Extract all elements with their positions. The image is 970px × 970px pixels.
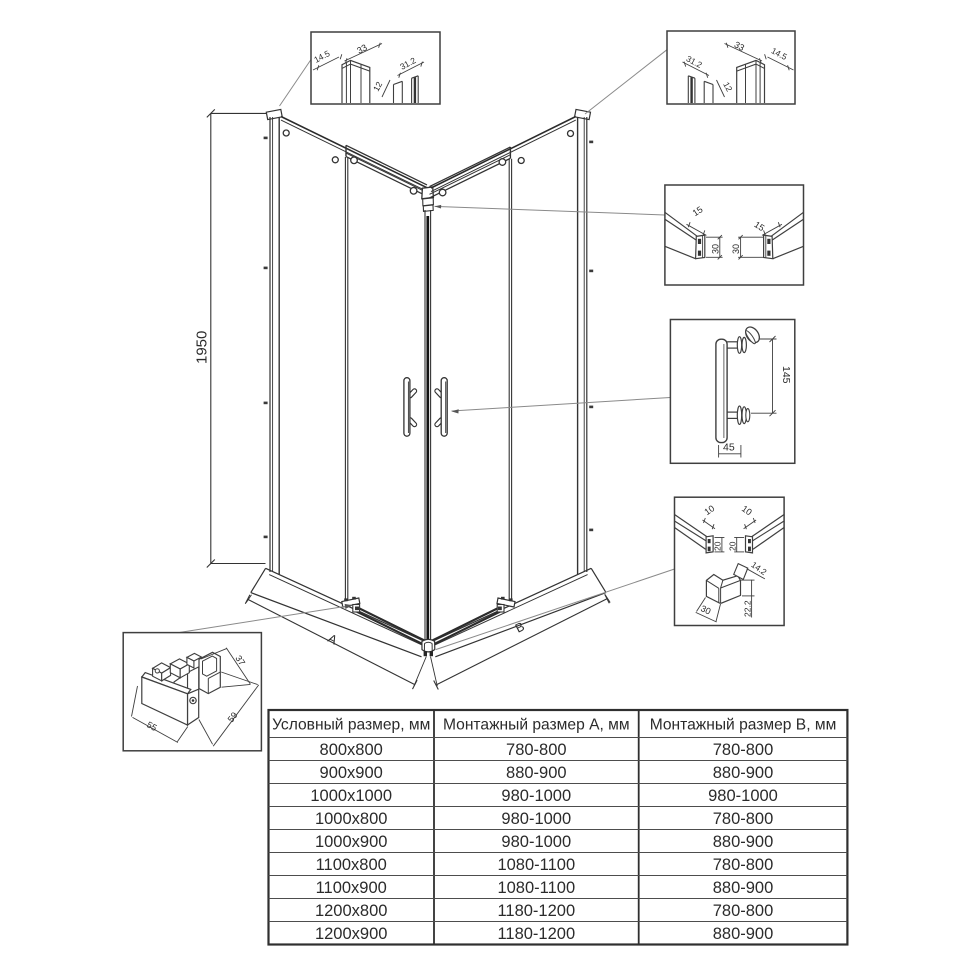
svg-text:30: 30 [731,244,741,254]
svg-text:Монтажный размер В, мм: Монтажный размер В, мм [650,716,837,733]
svg-text:1100х800: 1100х800 [316,856,387,874]
svg-text:Условный размер, мм: Условный размер, мм [272,716,430,733]
svg-text:880-900: 880-900 [506,764,567,782]
svg-text:30: 30 [711,244,721,254]
svg-text:980-1000: 980-1000 [501,787,571,805]
svg-text:B: B [513,619,527,635]
svg-text:1180-1200: 1180-1200 [497,902,575,920]
svg-text:1080-1100: 1080-1100 [497,856,575,874]
svg-text:1080-1100: 1080-1100 [497,879,575,897]
svg-text:880-900: 880-900 [713,925,774,943]
svg-text:880-900: 880-900 [713,833,774,851]
svg-text:780-800: 780-800 [713,856,774,874]
svg-text:45: 45 [723,442,735,454]
svg-text:800х800: 800х800 [320,741,383,759]
svg-text:145: 145 [780,366,792,384]
svg-text:1000х1000: 1000х1000 [310,787,392,805]
svg-text:900х900: 900х900 [320,764,383,782]
svg-text:Монтажный размер А, мм: Монтажный размер А, мм [443,716,630,733]
svg-text:1000х900: 1000х900 [315,833,388,851]
svg-text:780-800: 780-800 [713,902,774,920]
svg-text:20: 20 [713,541,723,551]
svg-text:1200х800: 1200х800 [315,902,388,920]
svg-text:780-800: 780-800 [713,810,774,828]
svg-text:780-800: 780-800 [713,741,774,759]
svg-text:980-1000: 980-1000 [708,787,778,805]
svg-text:980-1000: 980-1000 [501,833,571,851]
svg-text:1100х900: 1100х900 [316,879,387,897]
svg-text:1000х800: 1000х800 [315,810,388,828]
svg-text:20: 20 [727,541,737,551]
svg-text:1180-1200: 1180-1200 [497,925,575,943]
svg-text:1950: 1950 [194,331,211,364]
svg-text:780-800: 780-800 [506,741,567,759]
svg-text:1200х900: 1200х900 [315,925,388,943]
svg-text:880-900: 880-900 [713,879,774,897]
svg-text:980-1000: 980-1000 [501,810,571,828]
svg-text:22.2: 22.2 [742,600,752,617]
svg-text:880-900: 880-900 [713,764,774,782]
